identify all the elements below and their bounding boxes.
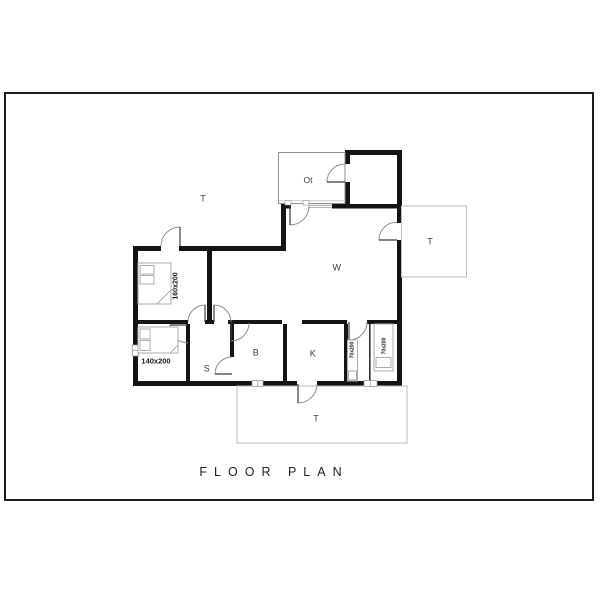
terrace-label-bottom: T: [313, 415, 319, 424]
bed-160x200: [138, 263, 171, 304]
door-ot-to-living: [290, 206, 309, 225]
terrace-label-top-left: T: [200, 195, 206, 204]
narrow-room-divider-wall: [369, 324, 371, 381]
door-bedroom-wing-to-terrace: [161, 227, 180, 246]
bed-size-label-70x200-left: 70x200: [351, 342, 356, 359]
floor-plan-sheet: T Ot T W B K S T 160x200 140x200 70x200 …: [0, 0, 600, 600]
door-room-s: [215, 357, 232, 374]
terrace-label-right: T: [427, 238, 433, 247]
window-bottom-narrow-rooms: [364, 381, 377, 387]
room-label-w: W: [333, 264, 342, 273]
glass-section-under-ot: [309, 205, 332, 207]
bed-size-label-70x200-right: 70x200: [383, 338, 388, 355]
terrace-right-outline: [402, 206, 467, 277]
bed-140x200: [138, 327, 178, 353]
door-living-to-right-terrace: [379, 222, 397, 240]
terrace-bottom-outline: [237, 386, 407, 443]
bed-size-label-140x200: 140x200: [141, 357, 170, 365]
interior-walls: [135, 251, 402, 381]
door-narrow-room: [349, 322, 367, 340]
bed-size-label-160x200: 160x200: [173, 272, 180, 299]
window-bottom-b: [252, 381, 263, 387]
door-hall-nook: [214, 305, 231, 322]
plan-title: FLOOR PLAN: [199, 465, 348, 479]
room-label-s: S: [204, 365, 211, 374]
floor-plan-drawing: [0, 0, 600, 600]
room-label-b: B: [253, 349, 260, 358]
door-back-entrance: [298, 384, 317, 403]
room-label-k: K: [310, 350, 317, 359]
room-label-ot: Ot: [304, 176, 313, 185]
door-bedroom1: [188, 305, 205, 322]
